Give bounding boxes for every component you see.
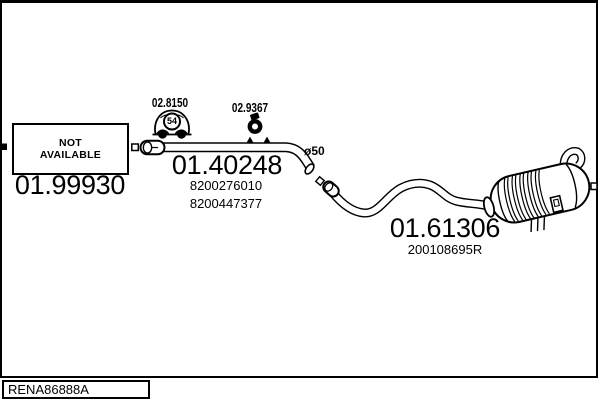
drawing-reference-box: RENA86888A xyxy=(2,380,150,399)
mid-pipe-oem-number-1: 8200276010 xyxy=(166,179,286,192)
clamp-part-code: 02.9367 xyxy=(229,102,271,115)
exhaust-diagram xyxy=(0,0,600,400)
front-connector-marker xyxy=(2,144,7,151)
joint-marker xyxy=(316,177,324,185)
joint-marker xyxy=(132,144,139,151)
mid-pipe-oem-number-2: 8200447377 xyxy=(166,197,286,210)
not-available-box: NOT AVAILABLE xyxy=(12,123,129,175)
rear-muffler-oem-number: 200108695R xyxy=(385,243,505,256)
not-available-line1: NOT xyxy=(59,137,82,149)
catalog-page: { "colors": { "ink": "#000000", "paper":… xyxy=(0,0,600,400)
gasket-part-code: 02.8150 xyxy=(149,97,191,110)
not-available-line2: AVAILABLE xyxy=(40,149,101,161)
clamp-position-hook xyxy=(247,137,254,143)
clamp-position-hook xyxy=(264,137,271,143)
drawing-reference: RENA86888A xyxy=(8,382,89,397)
gasket-badge-number: 54 xyxy=(164,117,180,126)
rear-muffler-part-code: 01.61306 xyxy=(385,215,505,242)
front-part-code: 01.99930 xyxy=(10,172,130,199)
rear-connector-marker xyxy=(591,183,597,190)
pipe-clamp-icon xyxy=(250,112,260,131)
mid-pipe-part-code: 01.40248 xyxy=(167,152,287,179)
pipe-diameter-label: ø50 xyxy=(304,145,325,157)
